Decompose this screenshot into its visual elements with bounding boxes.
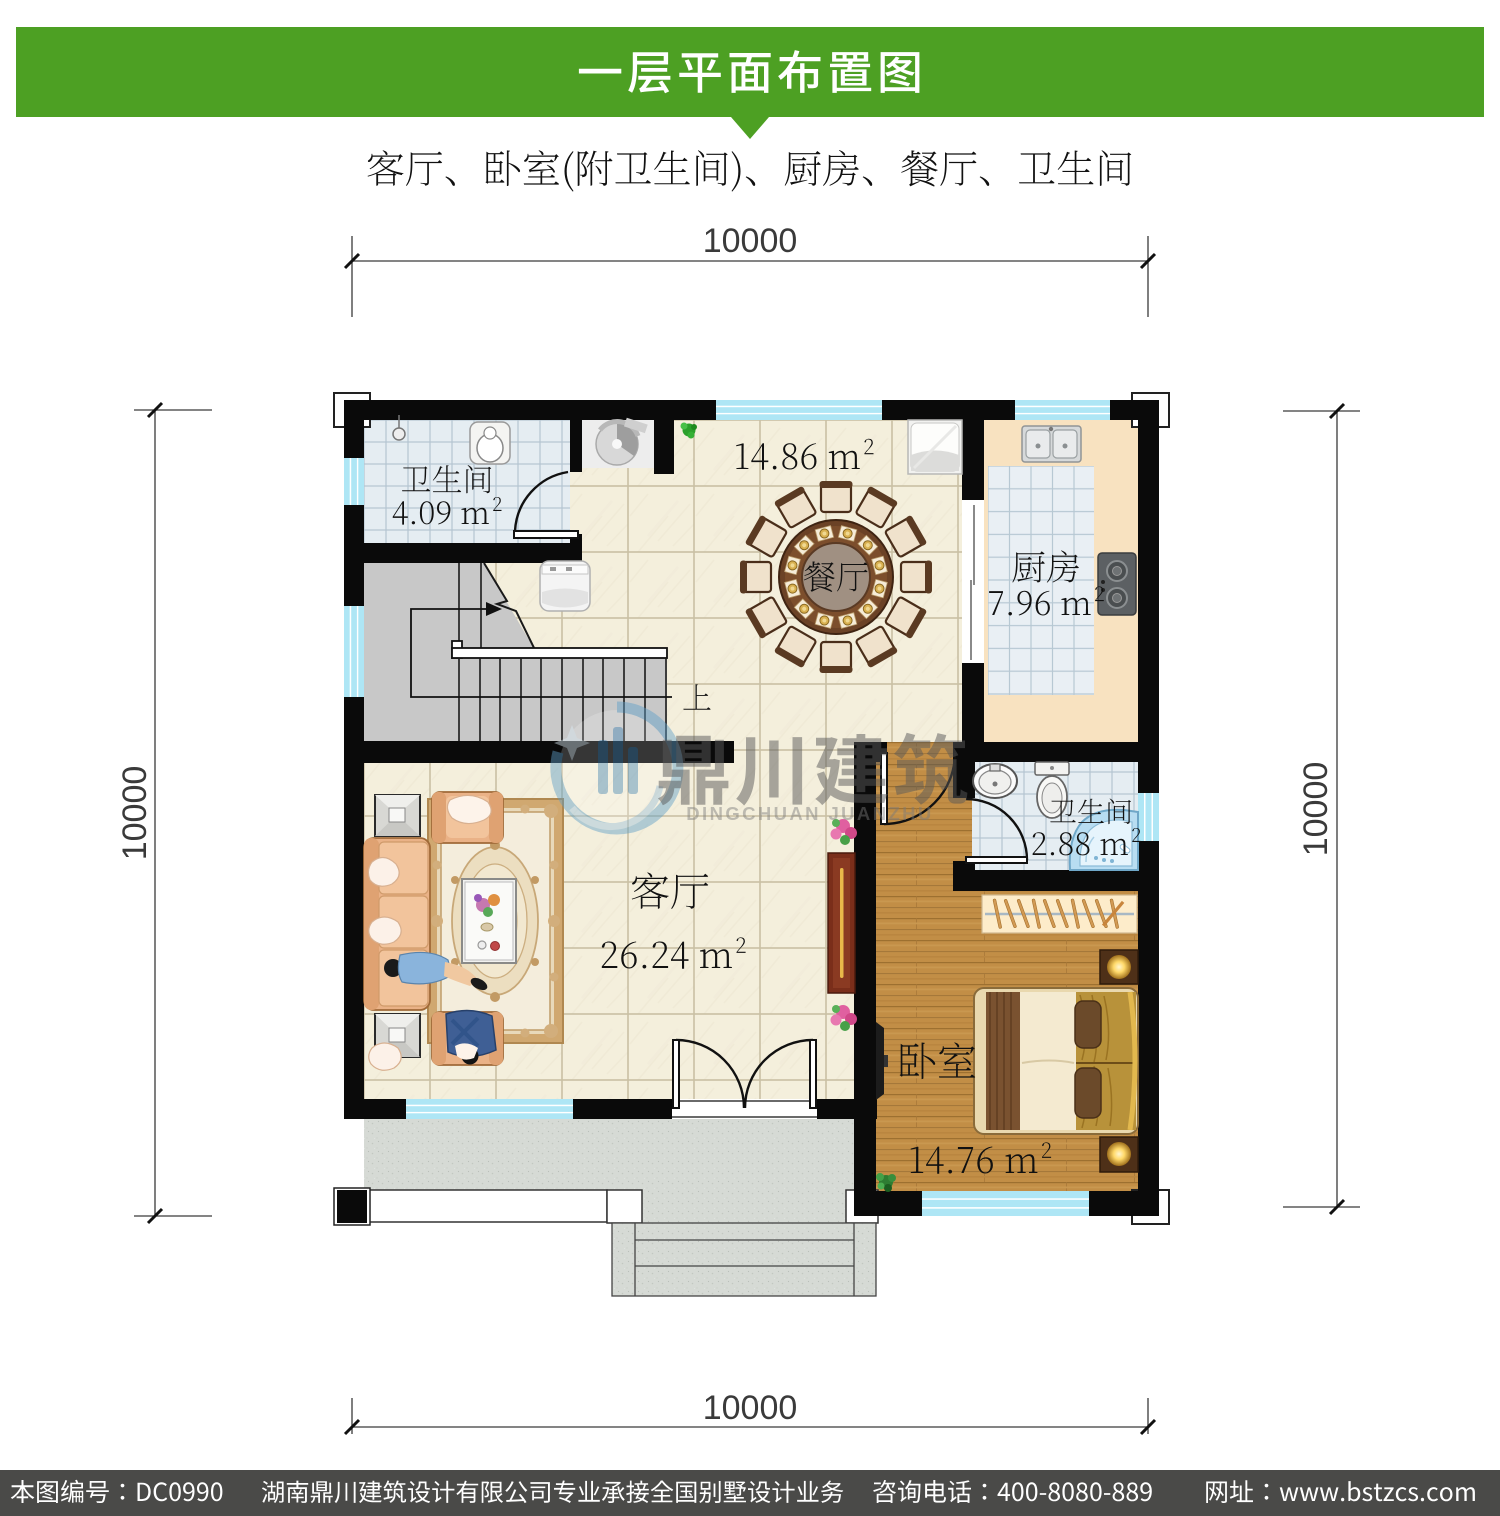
svg-text:10000: 10000: [116, 766, 154, 861]
svg-text:10000: 10000: [1297, 762, 1335, 857]
svg-text:10000: 10000: [703, 1389, 798, 1427]
svg-text:10000: 10000: [703, 222, 798, 260]
svg-text:DINGCHUAN JUANZHU: DINGCHUAN JUANZHU: [686, 803, 933, 824]
